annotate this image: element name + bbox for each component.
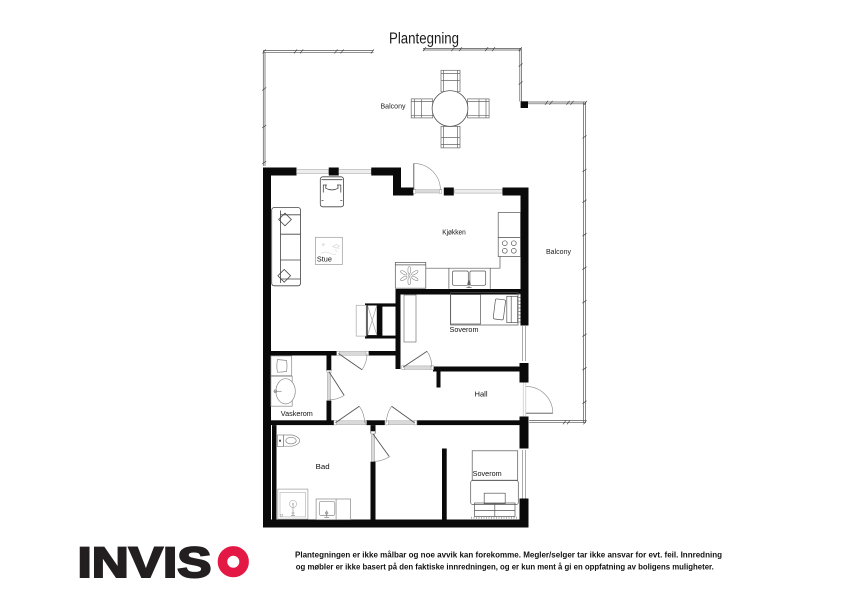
svg-text:Plantegningen er ikke målbar o: Plantegningen er ikke målbar og noe avvi… (295, 550, 722, 560)
svg-text:Stue: Stue (317, 256, 332, 263)
svg-text:Hall: Hall (475, 392, 488, 399)
svg-text:Plantegning: Plantegning (389, 31, 459, 48)
svg-text:Balcony: Balcony (381, 103, 406, 110)
svg-text:Kjøkken: Kjøkken (442, 230, 466, 237)
svg-text:Soverom: Soverom (473, 471, 502, 478)
svg-text:Soverom: Soverom (450, 327, 479, 334)
svg-text:INVIS: INVIS (78, 539, 212, 587)
svg-text:og møbler er ikke basert på de: og møbler er ikke basert på den faktiske… (296, 562, 714, 572)
svg-text:Balcony: Balcony (546, 249, 571, 256)
svg-text:Vaskerom: Vaskerom (281, 411, 313, 418)
svg-text:Bad: Bad (316, 464, 330, 471)
